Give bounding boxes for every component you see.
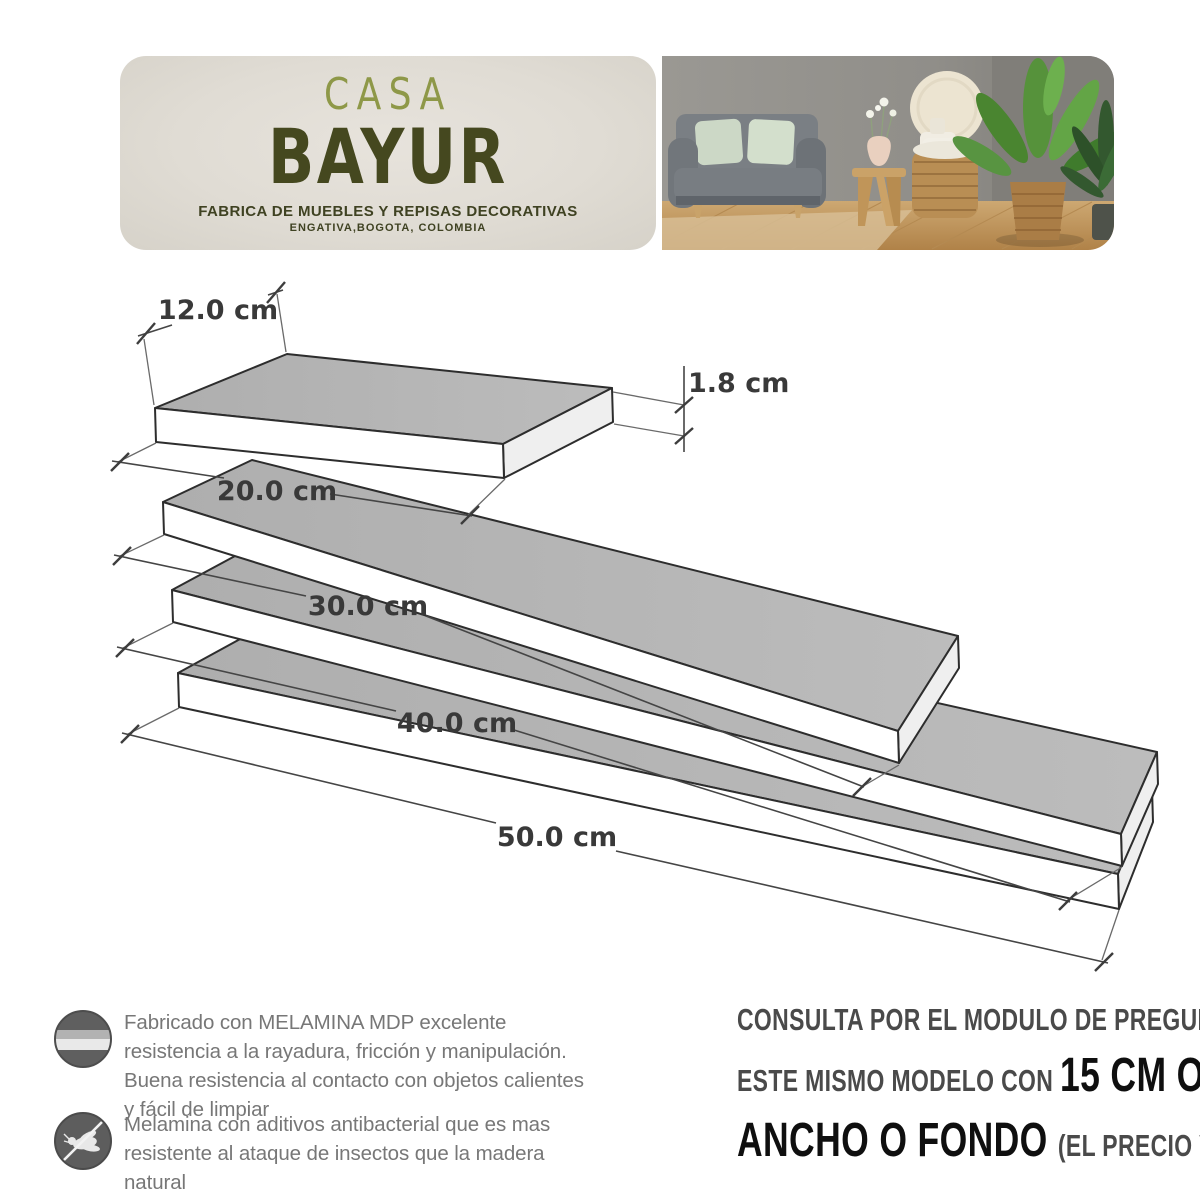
cta-line3-regular: (EL PRECIO VARIA) <box>1058 1128 1200 1163</box>
feature-melamine: Fabricado con MELAMINA MDP excelente res… <box>52 1008 586 1124</box>
cta-line1: CONSULTA POR EL MODULO DE PREGUNTAS POR <box>737 1002 1200 1037</box>
length-label-40cm: 40.0 cm <box>397 708 517 739</box>
length-label-50cm: 50.0 cm <box>497 822 617 853</box>
depth-dimension-label: 12.0 cm <box>158 295 278 326</box>
shelf-20cm <box>155 354 613 478</box>
cta-block: CONSULTA POR EL MODULO DE PREGUNTAS POR … <box>737 1004 1166 1165</box>
cta-line3-bold: ANCHO O FONDO <box>737 1114 1058 1167</box>
product-infographic: CASA BAYUR FABRICA DE MUEBLES Y REPISAS … <box>0 0 1200 1200</box>
cta-line2-regular: ESTE MISMO MODELO CON <box>737 1063 1060 1098</box>
cta-line2-bold: 15 CM O MAS DE <box>1060 1049 1200 1102</box>
melamine-layers-icon <box>52 1008 114 1075</box>
feature-antibacterial-text: Melamina con aditivos antibacterial que … <box>124 1110 586 1197</box>
no-insects-icon <box>52 1110 114 1177</box>
length-label-20cm: 20.0 cm <box>217 476 337 507</box>
feature-melamine-text: Fabricado con MELAMINA MDP excelente res… <box>124 1008 586 1124</box>
feature-antibacterial: Melamina con aditivos antibacterial que … <box>52 1110 586 1197</box>
thickness-dimension-label: 1.8 cm <box>688 368 789 399</box>
length-label-30cm: 30.0 cm <box>308 591 428 622</box>
